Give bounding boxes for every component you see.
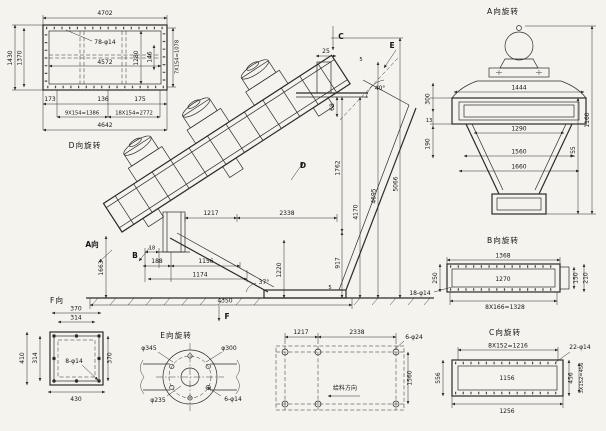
dim-68: 68 [329, 103, 336, 111]
dim-314-top: 314 [70, 315, 82, 322]
section-e-label: E [389, 41, 394, 50]
dim-4170: 4170 [353, 204, 360, 219]
dim-holes-22: 22-φ14 [569, 344, 591, 351]
view-a-title: A向旋转 [487, 6, 519, 16]
dim-4572: 4572 [97, 59, 112, 66]
view-d-top: 4702 78-φ14 4572 1430 1370 1280 146 7X15… [7, 10, 181, 150]
dim-1368: 1368 [495, 253, 510, 260]
dim-5-bottom: 5 [328, 285, 331, 291]
dim-holes-8x14: 8-φ14 [65, 358, 83, 365]
dim-18: 18 [149, 246, 156, 252]
dim-40deg: 40° [375, 85, 386, 92]
view-f-title: F向 [50, 295, 64, 305]
dim-1270: 1270 [495, 276, 510, 283]
dim-190: 190 [425, 138, 432, 150]
dim-18x154: 18X154=2772 [115, 111, 153, 117]
dim-370-top: 370 [70, 306, 82, 313]
dim-1160: 1160 [584, 112, 591, 127]
dim-300: 300 [425, 93, 432, 105]
section-c-label: C [338, 32, 344, 41]
dim-917: 917 [335, 257, 342, 269]
view-a-end: A向旋转 1444 1290 1560 1660 300 13 190 755 … [425, 6, 597, 214]
dim-4695: 4695 [371, 188, 378, 203]
drawing-sheet: 4702 78-φ14 4572 1430 1370 1280 146 7X15… [0, 0, 606, 431]
dim-173: 173 [44, 96, 56, 103]
dim-1217-plan: 1217 [293, 329, 308, 336]
dim-556: 556 [435, 372, 442, 384]
dim-210: 210 [583, 272, 590, 284]
dim-1663: 1663 [98, 260, 105, 275]
dim-1370: 1370 [17, 50, 24, 65]
dim-188: 188 [151, 258, 163, 265]
dim-9x154: 9X154=1386 [65, 111, 99, 117]
dim-175: 175 [134, 96, 146, 103]
dim-phi345: φ345 [141, 345, 157, 352]
dim-1762: 1762 [335, 160, 342, 175]
dim-1174: 1174 [192, 272, 207, 279]
dim-1444: 1444 [511, 85, 526, 92]
view-f-flange: F向 370 314 410 314 370 430 8-φ14 [19, 295, 114, 403]
dim-410: 410 [19, 352, 26, 364]
dim-4642: 4642 [97, 122, 112, 129]
dim-4350: 4350 [217, 298, 232, 305]
view-e-flange: E向旋转 φ345 φ300 φ235 6-φ14 [140, 330, 242, 411]
section-b-label: B [132, 251, 138, 260]
dim-4702: 4702 [97, 10, 112, 17]
dim-1290: 1290 [511, 126, 526, 133]
dim-2338-plan: 2338 [349, 329, 364, 336]
view-b-title: B向旋转 [487, 235, 519, 245]
dim-1560-a: 1560 [511, 149, 526, 156]
dim-1217-main: 1217 [203, 210, 218, 217]
view-foundation-plan: 1217 2338 6-φ24 1560 给料方向 [276, 329, 423, 410]
dim-holes-18: 18-φ14 [409, 290, 431, 297]
vibrator-motor [117, 129, 170, 181]
dim-314-left: 314 [32, 352, 39, 364]
dim-8x152: 8X152=1216 [488, 343, 528, 350]
dim-5-top: 5 [359, 57, 362, 63]
dim-430: 430 [70, 396, 82, 403]
view-d-title: D向旋转 [69, 140, 102, 150]
feed-direction-label: 给料方向 [333, 384, 357, 392]
view-b-flange: B向旋转 1368 1270 250 150 210 8X166=1328 18… [409, 235, 589, 311]
dim-25: 25 [322, 48, 330, 55]
vibrator-motor [235, 53, 288, 105]
drawing-canvas: 4702 78-φ14 4572 1430 1370 1280 146 7X15… [0, 0, 606, 431]
view-main-elevation: C 25 E 5 40° D A向 B 68 1762 917 4170 469… [84, 25, 434, 321]
dim-1156-c: 1156 [499, 375, 514, 382]
dim-2338-main: 2338 [279, 210, 294, 217]
view-e-title: E向旋转 [160, 330, 192, 340]
dim-37deg: 37° [259, 279, 270, 286]
dim-1156-main: 1156 [198, 258, 213, 265]
dim-1660: 1660 [511, 164, 526, 171]
dim-holes-78: 78-φ14 [94, 39, 116, 46]
dim-150: 150 [573, 272, 580, 284]
dim-370-right: 370 [107, 352, 114, 364]
view-c-flange: C向旋转 8X152=1216 22-φ14 1156 556 456 3X15… [435, 327, 591, 415]
dim-phi300: φ300 [221, 345, 237, 352]
section-a-label: A向 [85, 239, 98, 249]
dim-1560-plan: 1560 [407, 370, 414, 385]
dim-1220: 1220 [276, 262, 283, 277]
vibrator-motor [176, 91, 229, 143]
dim-8x166: 8X166=1328 [485, 304, 525, 311]
dim-5066: 5066 [393, 176, 400, 191]
view-c-title: C向旋转 [489, 327, 521, 337]
dim-phi235: φ235 [150, 397, 166, 404]
dim-755: 755 [570, 146, 577, 158]
section-d-label: D [300, 161, 306, 170]
dim-1256: 1256 [499, 408, 514, 415]
dim-holes-6x14: 6-φ14 [224, 396, 242, 403]
dim-holes-6x24: 6-φ24 [405, 334, 423, 341]
dim-7x154: 7X154=1078 [175, 40, 181, 74]
dim-250: 250 [432, 272, 439, 284]
dim-3x152: 3X152=456 [579, 362, 585, 393]
dim-146: 146 [147, 51, 154, 63]
dim-1280: 1280 [133, 50, 140, 65]
dim-136: 136 [97, 96, 109, 103]
dim-13: 13 [426, 118, 433, 124]
dim-1430: 1430 [7, 50, 14, 65]
ground-hatching [92, 298, 430, 305]
dim-456: 456 [568, 372, 575, 384]
section-f-label: F [224, 312, 229, 321]
